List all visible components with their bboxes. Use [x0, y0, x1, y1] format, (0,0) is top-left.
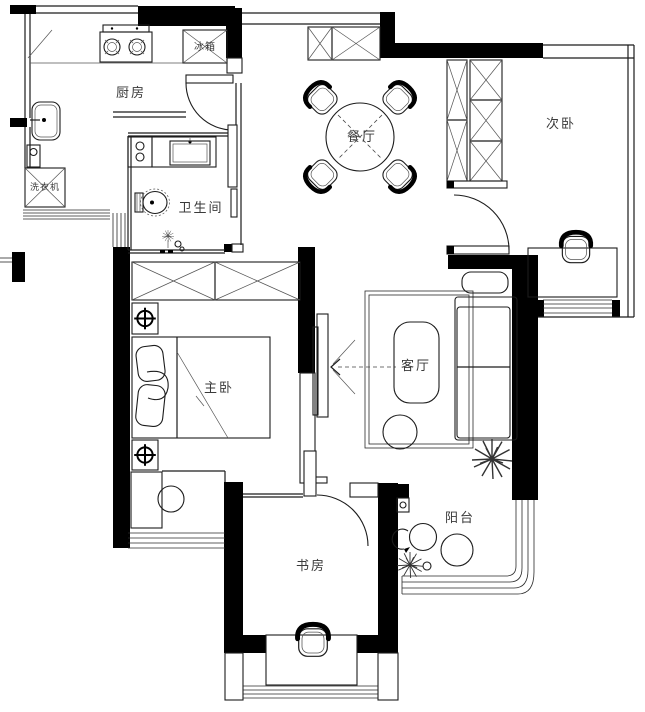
- plant: [397, 552, 423, 578]
- floor-plan-page: 厨房 冰箱 餐厅 次卧 洗衣机 卫生间 主卧 客厅 书房 阳台: [0, 0, 645, 712]
- bathroom-fixtures: [128, 137, 216, 253]
- sofa: [455, 272, 517, 440]
- service-window: [23, 210, 125, 247]
- dining-chair: [301, 78, 341, 118]
- structural-walls: [10, 5, 620, 653]
- doors: [186, 75, 509, 546]
- wardrobe: [447, 60, 507, 188]
- nightstand: [132, 303, 158, 334]
- bathroom-label: 卫生间: [178, 201, 223, 216]
- study-bay-window: [243, 686, 378, 698]
- second-bedroom-door: [447, 195, 509, 254]
- dining-chair: [301, 156, 341, 196]
- study-fixtures: [266, 624, 357, 685]
- living-room-label: 客厅: [401, 358, 431, 374]
- plant: [472, 439, 512, 479]
- study-chair: [298, 624, 329, 656]
- small-pot: [423, 562, 431, 570]
- desk-chair: [561, 232, 591, 262]
- nightstand: [132, 440, 158, 470]
- dining-chair: [379, 156, 419, 196]
- master-bedroom-label: 主卧: [204, 381, 234, 396]
- entry-column: [227, 58, 242, 73]
- entry-cabinet: [308, 27, 380, 60]
- stove: [100, 25, 152, 62]
- dressing-table: [131, 472, 184, 528]
- bathroom-sliding-door: [228, 125, 237, 217]
- washer-label: 洗衣机: [30, 181, 60, 193]
- second-bedroom-label: 次卧: [546, 116, 576, 132]
- desk: [528, 248, 617, 297]
- study-label: 书房: [296, 558, 326, 574]
- study-door: [304, 451, 368, 546]
- utility-box: [397, 484, 409, 512]
- bed: [132, 337, 270, 438]
- bathroom-vanity: [128, 137, 216, 167]
- dining-label: 餐厅: [347, 129, 377, 145]
- fridge-label: 冰箱: [194, 40, 216, 53]
- balcony-fixtures: [392, 484, 473, 578]
- tv-unit: [313, 314, 396, 417]
- living-room-fixtures: [313, 272, 517, 479]
- balcony-stool: [441, 534, 473, 566]
- study-desk: [266, 635, 357, 685]
- master-bedroom-window: [0, 258, 225, 548]
- toilet: [135, 189, 170, 216]
- balcony-label: 阳台: [445, 511, 475, 526]
- second-bedroom-window: [543, 300, 612, 313]
- kitchen-label: 厨房: [116, 85, 146, 101]
- floor-plan-drawing: 厨房 冰箱 餐厅 次卧 洗衣机 卫生间 主卧 客厅 书房 阳台: [0, 0, 645, 712]
- master-wardrobe: [132, 262, 300, 300]
- kitchen-door: [186, 75, 233, 130]
- kitchen-sink: [30, 102, 60, 140]
- balcony-stool: [410, 524, 437, 551]
- gas-meter: [27, 145, 40, 167]
- dining-chair: [379, 78, 419, 118]
